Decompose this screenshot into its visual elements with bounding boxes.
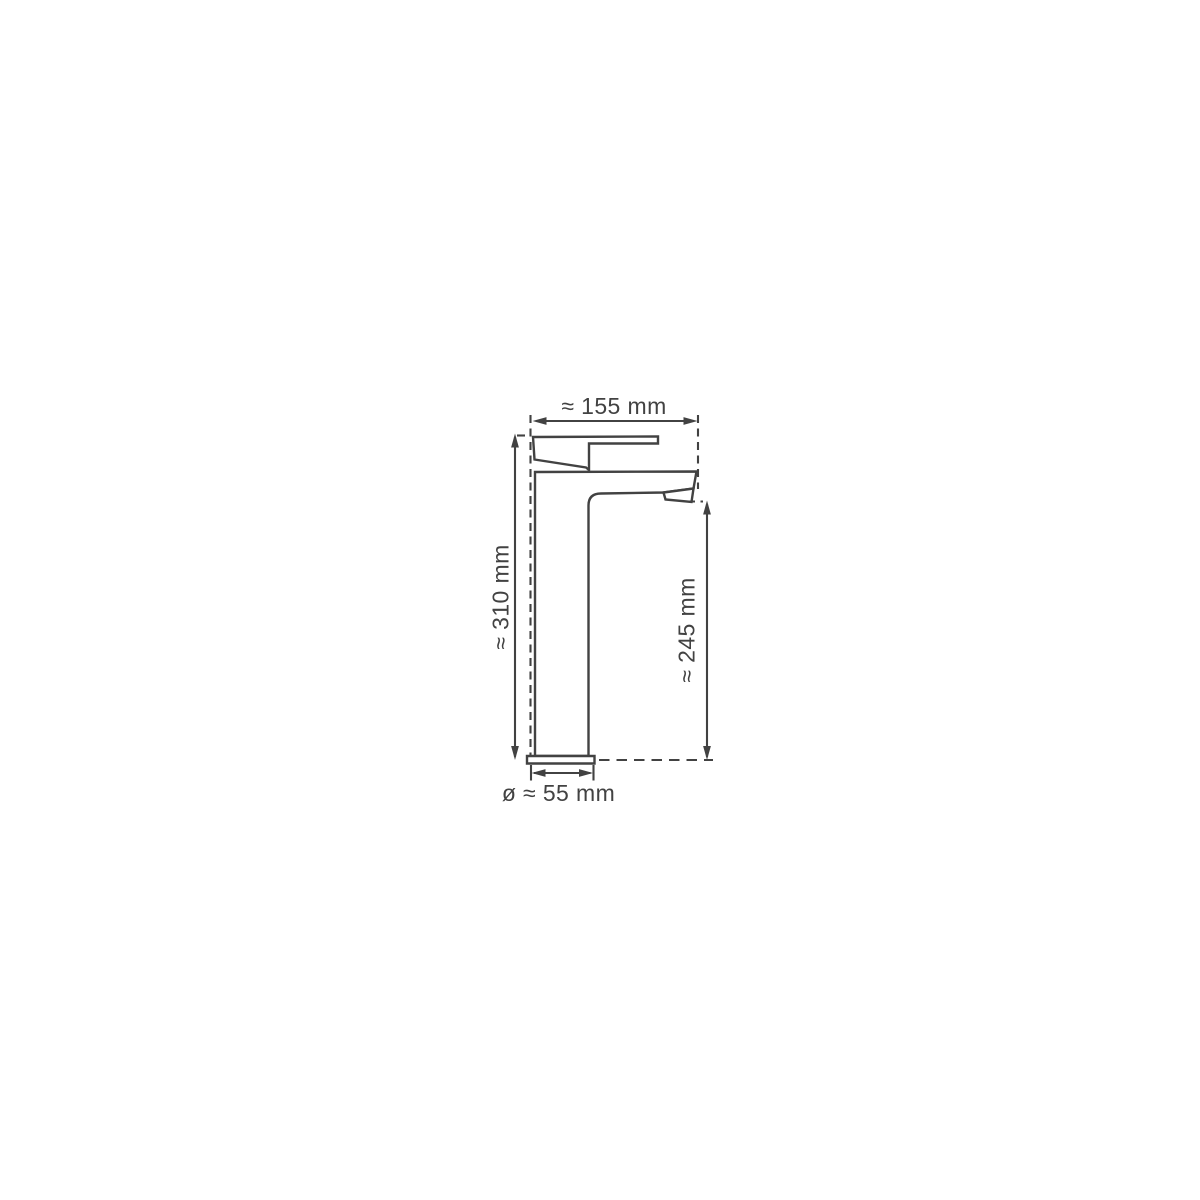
arrowhead-down-icon — [511, 746, 519, 760]
faucet-outline-group — [527, 437, 697, 764]
dimension-label-top-width: ≈ 155 mm — [561, 393, 666, 419]
dimension-left-height: ≈ 310 mm — [488, 434, 530, 761]
arrowhead-down-icon — [703, 746, 711, 760]
dimension-label-right-height: ≈ 245 mm — [674, 577, 700, 682]
arrowhead-up-icon — [703, 501, 711, 515]
dimension-top-width: ≈ 155 mm — [533, 393, 698, 425]
faucet-lever-handle-outline — [533, 437, 658, 471]
dimension-label-base-diameter: ø ≈ 55 mm — [502, 780, 615, 806]
drawing-canvas: ≈ 155 mm ≈ 310 mm ≈ 245 mm ø ≈ 55 mm — [0, 0, 1200, 1200]
dimension-base-diameter: ø ≈ 55 mm — [502, 765, 615, 806]
faucet-technical-drawing: ≈ 155 mm ≈ 310 mm ≈ 245 mm ø ≈ 55 mm — [0, 0, 1200, 1200]
arrowhead-left-icon — [532, 769, 546, 777]
arrowhead-right-icon — [579, 769, 593, 777]
arrowhead-right-icon — [684, 417, 698, 425]
dimension-right-height: ≈ 245 mm — [674, 501, 711, 761]
faucet-body-outline — [535, 472, 697, 757]
faucet-base-flange-outline — [527, 756, 595, 764]
dimension-label-left-height: ≈ 310 mm — [488, 544, 514, 649]
arrowhead-left-icon — [533, 417, 547, 425]
